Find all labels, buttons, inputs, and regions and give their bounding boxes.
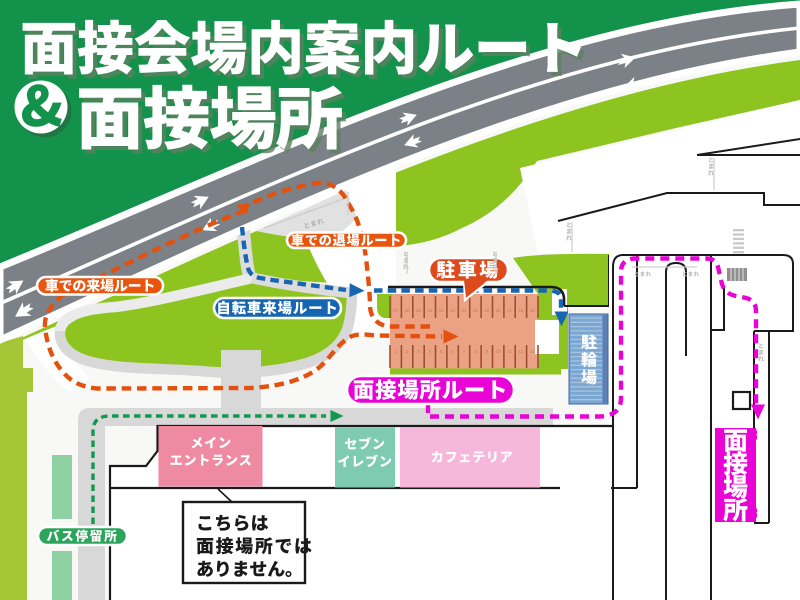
svg-text:20: 20 bbox=[473, 308, 478, 313]
svg-text:11: 11 bbox=[507, 349, 512, 354]
svg-text:21: 21 bbox=[462, 308, 467, 313]
svg-text:19: 19 bbox=[484, 308, 489, 313]
svg-text:23: 23 bbox=[439, 308, 444, 313]
svg-text:25: 25 bbox=[416, 308, 421, 313]
svg-text:16: 16 bbox=[519, 308, 524, 313]
svg-text:13: 13 bbox=[530, 349, 535, 354]
svg-text:18: 18 bbox=[496, 308, 501, 313]
svg-text:27: 27 bbox=[393, 308, 398, 313]
svg-text:10: 10 bbox=[496, 349, 501, 354]
svg-text:22: 22 bbox=[450, 308, 455, 313]
svg-text:26: 26 bbox=[405, 308, 410, 313]
svg-text:12: 12 bbox=[519, 349, 524, 354]
svg-text:15: 15 bbox=[530, 308, 535, 313]
svg-text:17: 17 bbox=[507, 308, 512, 313]
svg-text:24: 24 bbox=[428, 308, 433, 313]
